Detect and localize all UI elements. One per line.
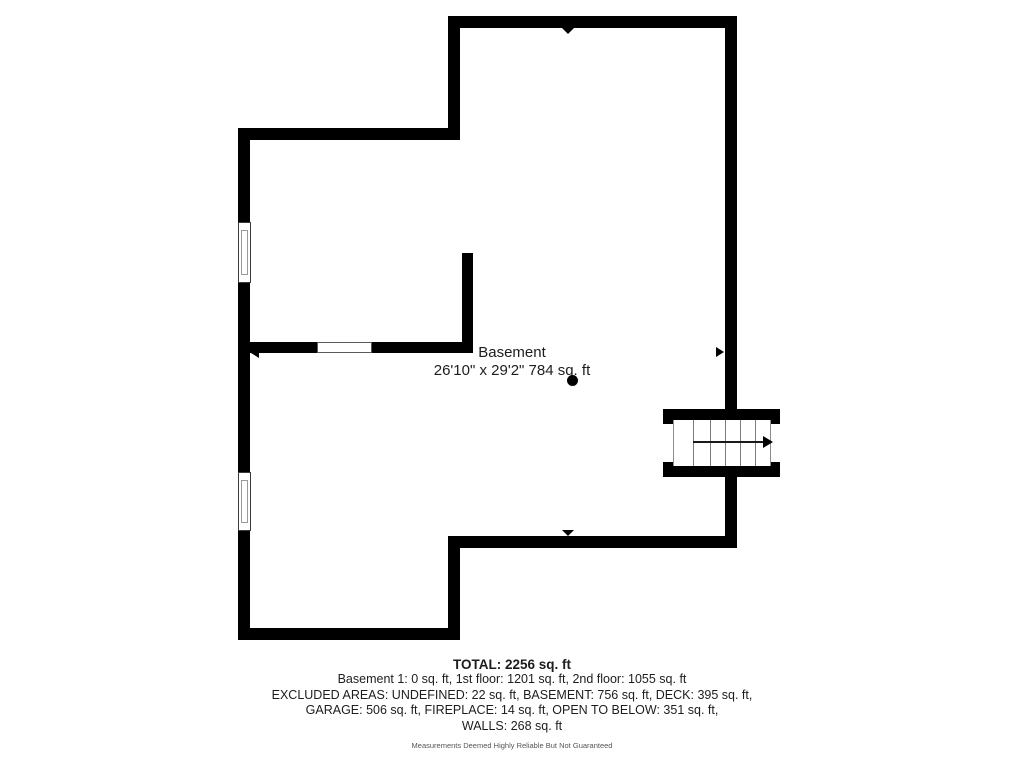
stair-tab-left-top (663, 420, 673, 424)
wall-tick-south-icon (562, 530, 574, 536)
floorplan-canvas: Basement 26'10" x 29'2" 784 sq. ft TOTAL… (0, 0, 1024, 768)
wall-upper-section-left (448, 16, 460, 140)
wall-tick-east-icon (716, 347, 724, 357)
window-symbol-upper (238, 222, 251, 283)
wall-east-upper (725, 16, 737, 409)
room-dimensions-label: 26'10" x 29'2" 784 sq. ft (362, 362, 662, 380)
summary-total: TOTAL: 2256 sq. ft (0, 657, 1024, 672)
stair-tab-right-bottom (770, 462, 780, 466)
stair-tread-line (693, 420, 694, 466)
stair-tread-line (725, 420, 726, 466)
stair-tread-line (710, 420, 711, 466)
stair-tread-line (755, 420, 756, 466)
wall-tick-north-icon (562, 28, 574, 34)
summary-walls: WALLS: 268 sq. ft (0, 719, 1024, 734)
summary-excluded-2: GARAGE: 506 sq. ft, FIREPLACE: 14 sq. ft… (0, 703, 1024, 718)
stair-direction-arrow-shaft (693, 441, 765, 443)
wall-south-middle (448, 536, 737, 548)
wall-north (448, 16, 737, 28)
stair-wall-bottom (663, 466, 780, 477)
stair-direction-arrow-icon (763, 436, 773, 448)
stair-tab-left-bottom (663, 462, 673, 466)
wall-interior-vertical (462, 253, 473, 353)
wall-south-lower (238, 628, 460, 640)
window-glass-upper (241, 230, 248, 275)
wall-lower-section-right (448, 536, 460, 640)
window-glass-lower (241, 480, 248, 523)
wall-interior-horizontal-left (250, 342, 317, 353)
stair-wall-top (663, 409, 780, 420)
wall-tick-west-icon (251, 348, 259, 358)
summary-floors: Basement 1: 0 sq. ft, 1st floor: 1201 sq… (0, 672, 1024, 687)
room-name-label: Basement (362, 344, 662, 362)
wall-east-lower (725, 477, 737, 548)
summary-excluded-1: EXCLUDED AREAS: UNDEFINED: 22 sq. ft, BA… (0, 688, 1024, 703)
stair-edge-left (673, 420, 674, 466)
wall-west-section-top (238, 128, 460, 140)
stair-tread-line (740, 420, 741, 466)
wall-west (238, 128, 250, 640)
disclaimer-text: Measurements Deemed Highly Reliable But … (0, 741, 1024, 750)
window-symbol-lower (238, 472, 251, 531)
area-summary: TOTAL: 2256 sq. ft Basement 1: 0 sq. ft,… (0, 657, 1024, 734)
stair-tab-right-top (770, 420, 780, 424)
area-reference-dot (567, 375, 578, 386)
